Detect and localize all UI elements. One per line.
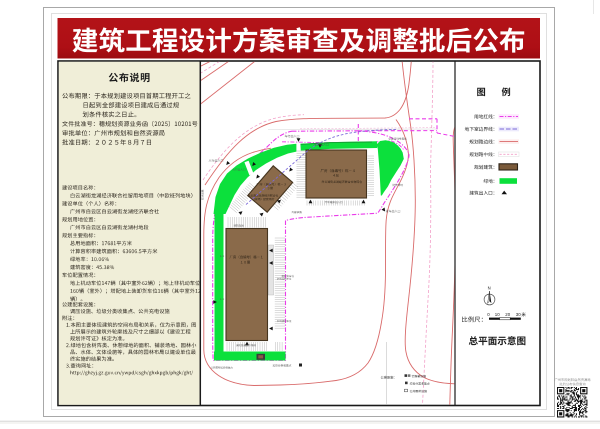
svg-text:20: 20 <box>505 312 510 317</box>
svg-text:30: 30 <box>516 312 521 317</box>
svg-text:10: 10 <box>495 312 500 317</box>
svg-text:N: N <box>488 286 491 291</box>
